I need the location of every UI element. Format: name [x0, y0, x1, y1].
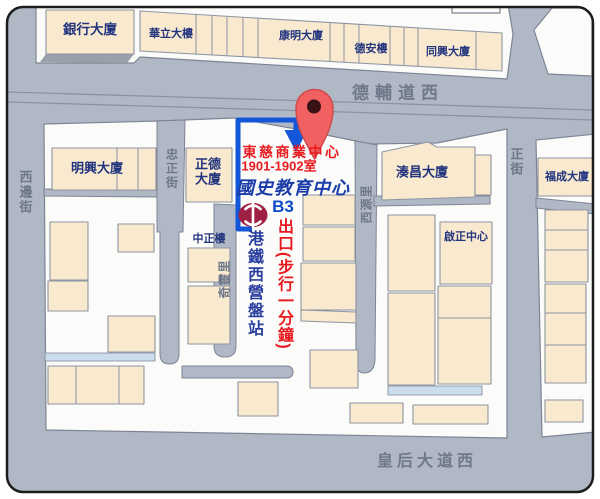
- fook-shing-building: [538, 158, 596, 196]
- map-canvas: [0, 0, 600, 499]
- tsau-cheong-building: [382, 142, 475, 200]
- kai-ching-building: [440, 222, 492, 284]
- bank-building: [46, 10, 134, 54]
- bank-building-shadow: [40, 54, 134, 63]
- map: 德輔道西 皇后大道西 西邊街 忠正街 正街 西源里 奇靈里 銀行大廈 華立大樓 …: [0, 0, 600, 499]
- mtr-logo-icon: [239, 203, 268, 227]
